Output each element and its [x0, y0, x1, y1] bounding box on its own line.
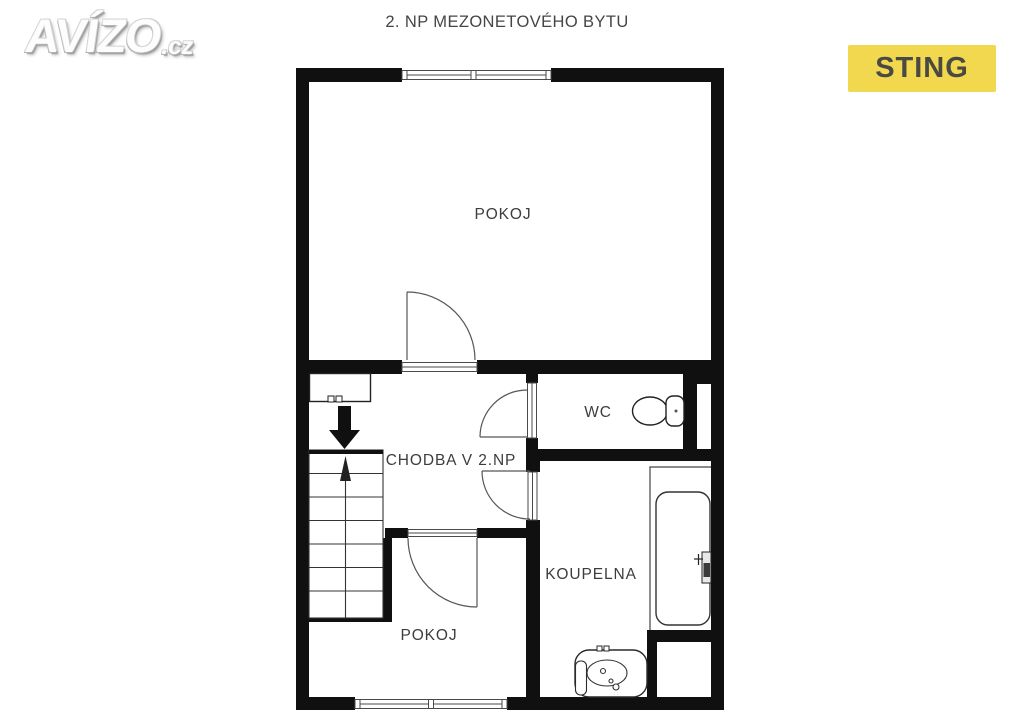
window-bottom — [355, 700, 507, 709]
door-wc — [480, 390, 527, 437]
room-label-wc: WC — [584, 404, 612, 422]
door-thresholds — [402, 363, 537, 537]
staircase — [309, 450, 383, 618]
floorplan-drawing — [0, 0, 1024, 724]
floorplan-image: AVÍZO.cz 2. NP MEZONETOVÉHO BYTU STING — [0, 0, 1024, 724]
room-label-pokoj-top: POKOJ — [474, 206, 531, 224]
door-top-pokoj — [407, 292, 475, 360]
room-label-chodba: CHODBA V 2.NP — [386, 452, 517, 470]
door-koupelna — [482, 471, 530, 519]
toilet-icon — [633, 396, 685, 426]
closet — [310, 374, 371, 403]
bathtub-icon — [650, 467, 711, 630]
washbasin-icon — [575, 646, 647, 697]
room-label-koupelna: KOUPELNA — [545, 566, 637, 584]
door-bottom-pokoj — [408, 538, 477, 607]
room-label-pokoj-bottom: POKOJ — [400, 627, 457, 645]
entry-arrow-icon — [329, 406, 360, 449]
window-top — [402, 71, 551, 80]
